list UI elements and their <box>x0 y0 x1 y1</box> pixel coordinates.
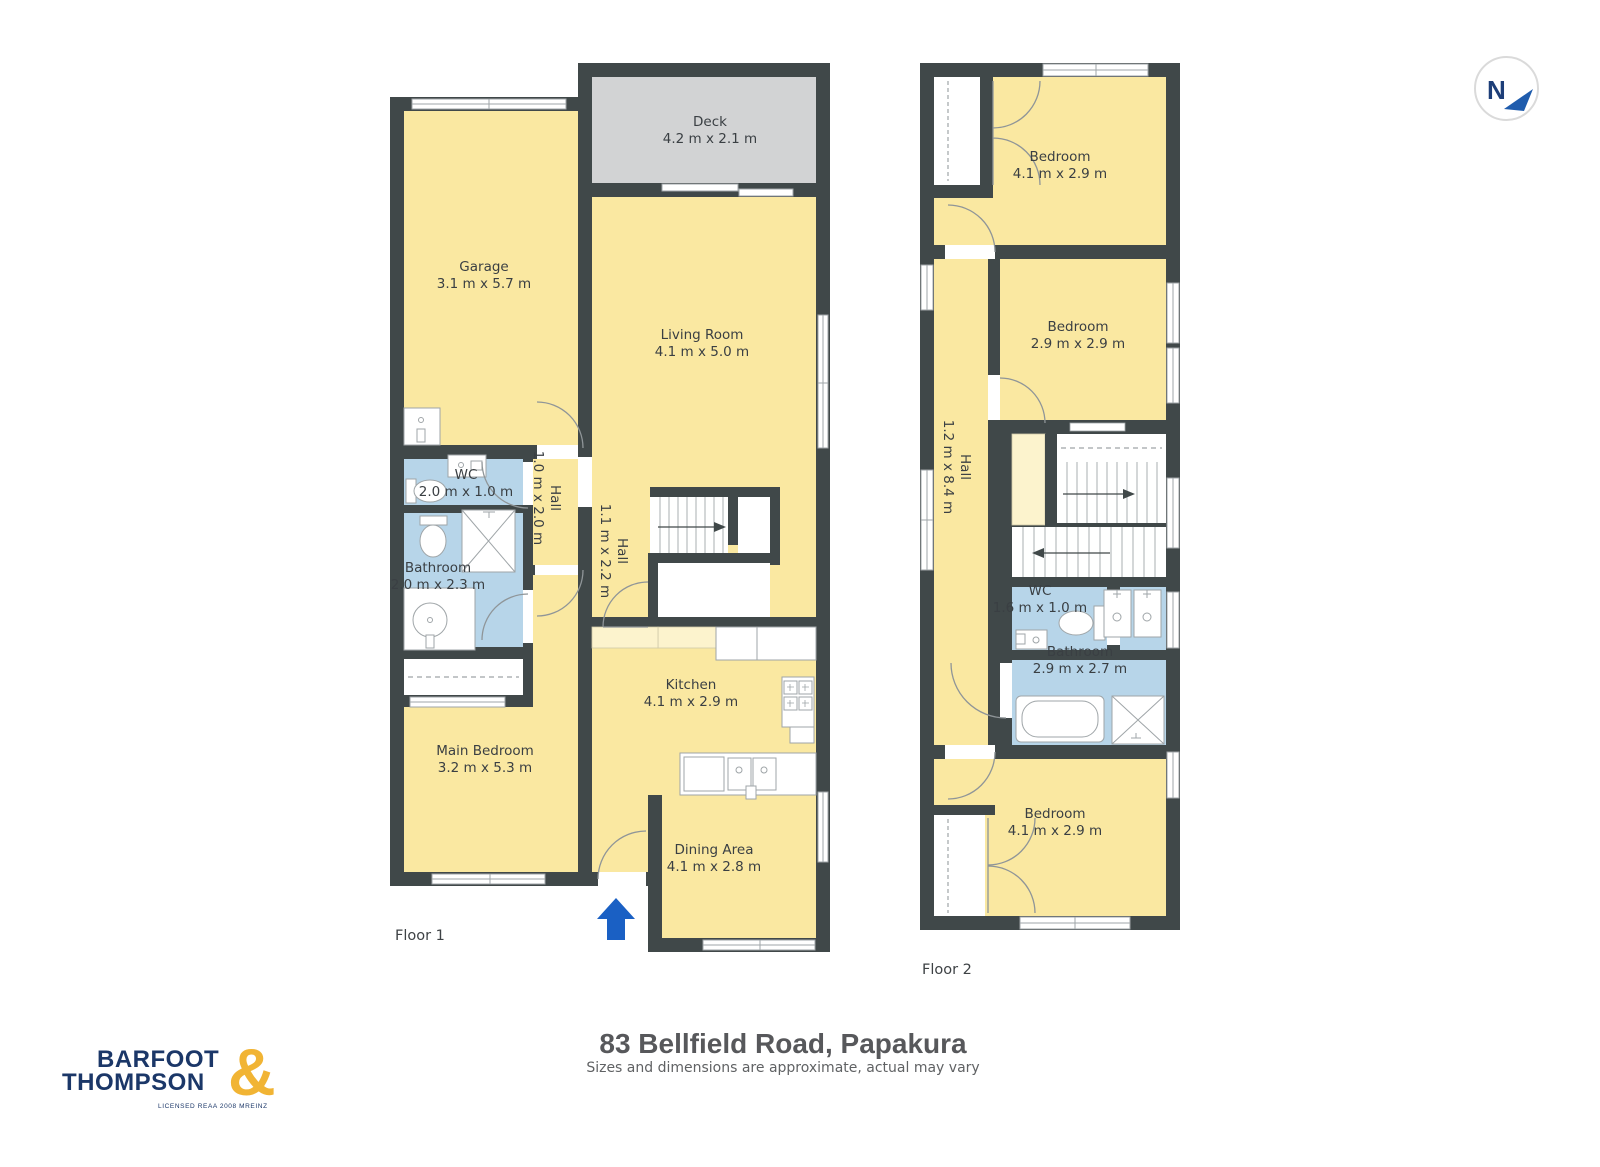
floorplan-page: Deck 4.2 m x 2.1 m Garage 3.1 m x 5.7 m … <box>0 0 1600 1167</box>
room-label: Bathroom 2.9 m x 2.7 m <box>1033 644 1127 678</box>
room-dims: 4.1 m x 5.0 m <box>655 344 749 361</box>
room-label: Garage 3.1 m x 5.7 m <box>437 259 531 293</box>
toilet-icon <box>1094 606 1105 640</box>
room-name: Hall <box>613 504 630 598</box>
room-dims: 4.1 m x 2.9 m <box>1013 166 1107 183</box>
page-title: 83 Bellfield Road, Papakura <box>599 1028 966 1060</box>
room-dims: 3.2 m x 5.3 m <box>436 760 534 777</box>
room-dims: 4.1 m x 2.8 m <box>667 859 761 876</box>
logo-word-thompson: THOMPSON <box>62 1069 205 1097</box>
room-dims: 1.2 m x 8.4 m <box>939 420 956 514</box>
room-dims: 2.0 m x 1.0 m <box>419 484 513 501</box>
room-name: Bathroom <box>1033 644 1127 661</box>
room-name: WC <box>993 583 1087 600</box>
room-label: Living Room 4.1 m x 5.0 m <box>655 327 749 361</box>
floorplan-drawing <box>0 0 1600 1167</box>
floor2-label: Floor 2 <box>922 962 972 978</box>
room-dims: 3.1 m x 5.7 m <box>437 276 531 293</box>
room-name: Main Bedroom <box>436 743 534 760</box>
room-name: Bedroom <box>1031 319 1125 336</box>
entrance-arrow-icon <box>597 898 635 940</box>
room-label: WC 2.0 m x 1.0 m <box>419 467 513 501</box>
room-label: Hall 1.2 m x 8.4 m <box>939 420 973 514</box>
room-name: WC <box>419 467 513 484</box>
room-label: Bedroom 4.1 m x 2.9 m <box>1013 149 1107 183</box>
room-label: Hall 1.0 m x 2.0 m <box>529 451 563 545</box>
room-dims: 4.1 m x 2.9 m <box>1008 823 1102 840</box>
room-label: Main Bedroom 3.2 m x 5.3 m <box>436 743 534 777</box>
room-dims: 4.2 m x 2.1 m <box>663 131 757 148</box>
room-name: Hall <box>956 420 973 514</box>
room-name: Living Room <box>655 327 749 344</box>
room-label: Bathroom 2.0 m x 2.3 m <box>391 560 485 594</box>
room-name: Deck <box>663 114 757 131</box>
room-dims: 2.0 m x 2.3 m <box>391 577 485 594</box>
room-name: Kitchen <box>644 677 738 694</box>
logo-tagline: LICENSED REAA 2008 MREINZ <box>158 1103 268 1110</box>
room-label: WC 1.6 m x 1.0 m <box>993 583 1087 617</box>
toilet-icon <box>420 516 447 525</box>
floor1-label: Floor 1 <box>395 928 445 944</box>
room-label: Bedroom 4.1 m x 2.9 m <box>1008 806 1102 840</box>
room-name: Bathroom <box>391 560 485 577</box>
room-name: Bedroom <box>1013 149 1107 166</box>
room-dims: 2.9 m x 2.7 m <box>1033 661 1127 678</box>
kitchen-sink-icon <box>728 758 751 790</box>
room-dims: 1.0 m x 2.0 m <box>529 451 546 545</box>
room-label: Bedroom 2.9 m x 2.9 m <box>1031 319 1125 353</box>
room-dims: 1.1 m x 2.2 m <box>596 504 613 598</box>
room-name: Garage <box>437 259 531 276</box>
room-label: Kitchen 4.1 m x 2.9 m <box>644 677 738 711</box>
room-name: Dining Area <box>667 842 761 859</box>
room-name: Hall <box>546 451 563 545</box>
page-subtitle: Sizes and dimensions are approximate, ac… <box>586 1060 979 1076</box>
room-label: Dining Area 4.1 m x 2.8 m <box>667 842 761 876</box>
room-dims: 1.6 m x 1.0 m <box>993 600 1087 617</box>
compass-north-letter: N <box>1487 75 1506 105</box>
room-dims: 4.1 m x 2.9 m <box>644 694 738 711</box>
compass-north-icon: N <box>1473 55 1540 122</box>
room-label: Deck 4.2 m x 2.1 m <box>663 114 757 148</box>
logo-ampersand: & <box>228 1034 276 1110</box>
room-dims: 2.9 m x 2.9 m <box>1031 336 1125 353</box>
compass-rose: N <box>1473 55 1540 122</box>
room-name: Bedroom <box>1008 806 1102 823</box>
brand-logo: BARFOOT THOMPSON & LICENSED REAA 2008 MR… <box>62 1046 312 1118</box>
room-label: Hall 1.1 m x 2.2 m <box>596 504 630 598</box>
bathtub-icon <box>1016 696 1104 742</box>
